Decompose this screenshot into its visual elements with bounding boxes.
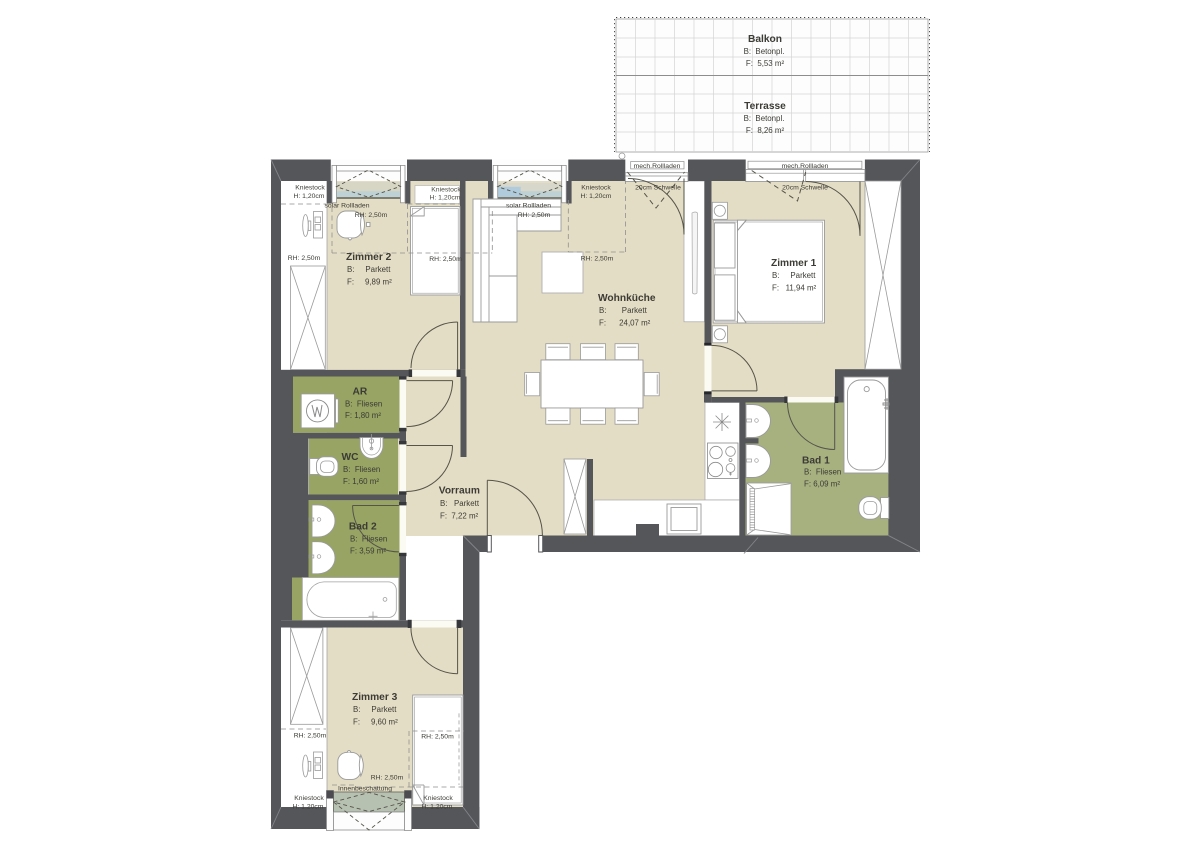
svg-text:Kniestock: Kniestock (295, 185, 325, 192)
svg-text:20cm Schwelle: 20cm Schwelle (782, 185, 828, 192)
svg-text:B: Fliesen: B: Fliesen (345, 400, 382, 409)
svg-text:B: Betonpl.: B: Betonpl. (744, 114, 785, 123)
svg-text:B: Betonpl.: B: Betonpl. (744, 47, 785, 56)
svg-text:RH: 2,50m: RH: 2,50m (581, 256, 614, 263)
svg-text:F: 11,94 m²: F: 11,94 m² (772, 284, 817, 293)
svg-text:Wohnküche: Wohnküche (598, 293, 656, 304)
svg-text:20cm Schwelle: 20cm Schwelle (635, 185, 681, 192)
svg-text:B: Parkett: B: Parkett (440, 499, 480, 508)
svg-text:mech.Rollladen: mech.Rollladen (782, 163, 829, 170)
svg-text:B: Parkett: B: Parkett (353, 705, 397, 714)
svg-text:F: 9,60 m²: F: 9,60 m² (353, 718, 398, 727)
svg-text:Balkon: Balkon (748, 34, 782, 45)
svg-text:B: Parkett: B: Parkett (772, 271, 816, 280)
svg-text:B: Parkett: B: Parkett (347, 265, 391, 274)
svg-text:F: 3,59 m²: F: 3,59 m² (350, 547, 386, 556)
svg-text:F: 5,53 m²: F: 5,53 m² (746, 59, 785, 68)
svg-text:Terrasse: Terrasse (744, 101, 786, 112)
svg-text:Zimmer 2: Zimmer 2 (346, 252, 392, 263)
svg-text:H: 1,20cm: H: 1,20cm (430, 195, 461, 202)
svg-text:mech.Rollladen: mech.Rollladen (634, 163, 681, 170)
svg-text:F: 24,07 m²: F: 24,07 m² (599, 319, 651, 328)
svg-text:Bad 2: Bad 2 (349, 522, 377, 533)
svg-text:H: 1,20cm: H: 1,20cm (422, 803, 453, 810)
svg-text:Bad 1: Bad 1 (802, 456, 830, 467)
svg-text:Innenbeschattung: Innenbeschattung (338, 786, 392, 793)
svg-text:RH: 2,50m: RH: 2,50m (294, 733, 327, 740)
svg-text:Zimmer 3: Zimmer 3 (352, 692, 398, 703)
svg-text:RH: 2,50m: RH: 2,50m (518, 212, 551, 219)
svg-text:Kniestock: Kniestock (581, 185, 611, 192)
svg-text:RH: 2,50m: RH: 2,50m (429, 256, 462, 263)
svg-text:Kniestock: Kniestock (431, 187, 461, 194)
svg-text:RH: 2,50m: RH: 2,50m (355, 212, 388, 219)
svg-text:Zimmer 1: Zimmer 1 (771, 258, 817, 269)
svg-text:F: 9,89 m²: F: 9,89 m² (347, 278, 392, 287)
svg-text:F: 1,60 m²: F: 1,60 m² (343, 477, 379, 486)
svg-text:B: Fliesen: B: Fliesen (350, 535, 387, 544)
svg-text:solar Rollladen: solar Rollladen (506, 203, 551, 210)
svg-text:H: 1,20cm: H: 1,20cm (293, 803, 324, 810)
svg-text:F: 8,26 m²: F: 8,26 m² (746, 126, 785, 135)
svg-text:Kniestock: Kniestock (294, 795, 324, 802)
svg-text:AR: AR (353, 387, 368, 398)
svg-text:RH: 2,50m: RH: 2,50m (371, 775, 404, 782)
svg-text:H: 1,20cm: H: 1,20cm (581, 193, 612, 200)
svg-text:F: 1,80 m²: F: 1,80 m² (345, 411, 381, 420)
svg-text:B: Fliesen: B: Fliesen (804, 468, 841, 477)
svg-text:RH: 2,50m: RH: 2,50m (421, 734, 454, 741)
svg-text:Kniestock: Kniestock (423, 795, 453, 802)
svg-text:B: Parkett: B: Parkett (599, 306, 648, 315)
svg-text:RH: 2,50m: RH: 2,50m (288, 255, 321, 262)
svg-text:solar Rollladen: solar Rollladen (325, 203, 370, 210)
svg-text:F: 7,22 m²: F: 7,22 m² (440, 512, 479, 521)
svg-text:Vorraum: Vorraum (439, 486, 480, 497)
svg-text:WC: WC (342, 452, 360, 463)
svg-text:H: 1,20cm: H: 1,20cm (294, 193, 325, 200)
svg-text:F: 6,09 m²: F: 6,09 m² (804, 480, 840, 489)
svg-text:B: Fliesen: B: Fliesen (343, 465, 380, 474)
